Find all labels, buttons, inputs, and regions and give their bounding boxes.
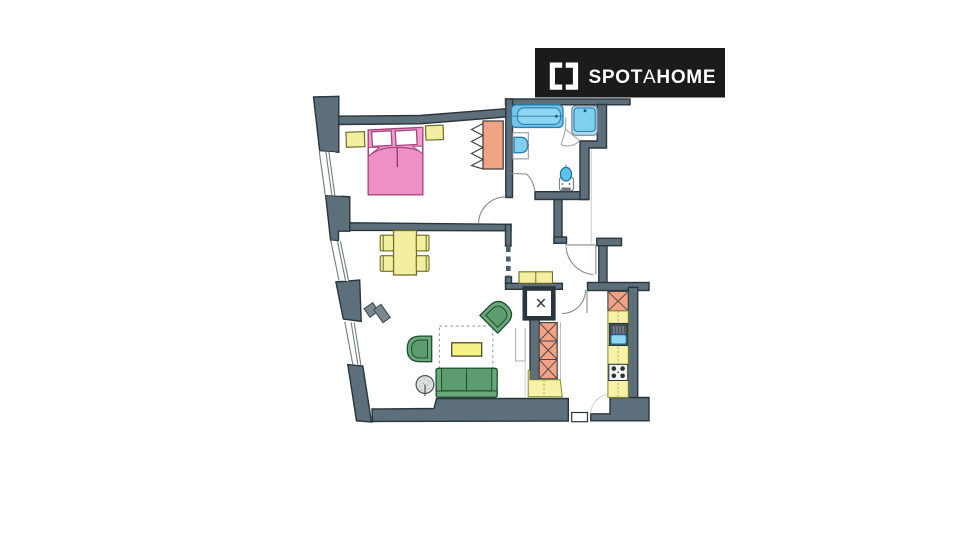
svg-text:SPOTAHOME: SPOTAHOME [589, 67, 717, 88]
